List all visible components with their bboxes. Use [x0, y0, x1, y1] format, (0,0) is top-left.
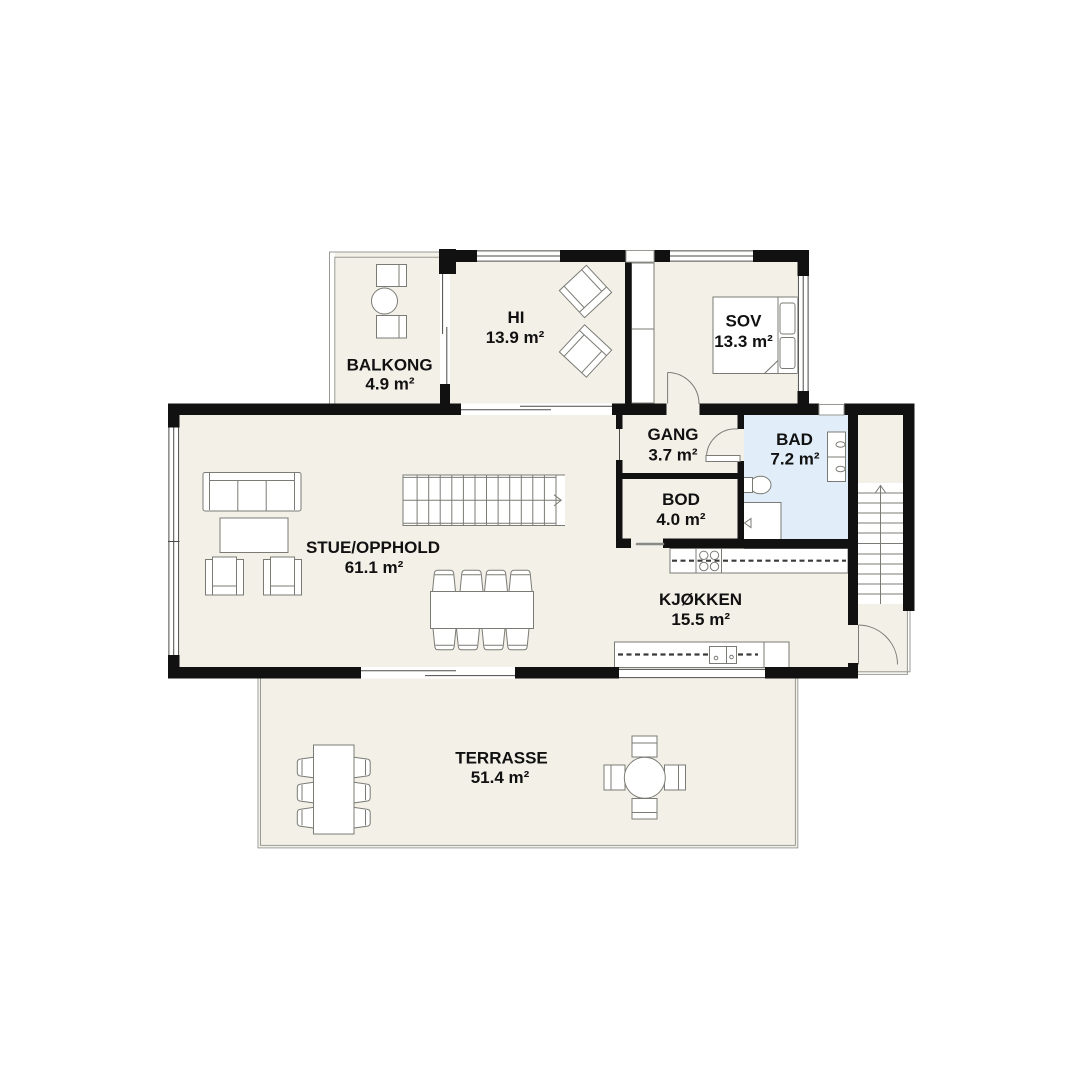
svg-text:KJØKKEN: KJØKKEN — [659, 590, 742, 609]
svg-text:4.0 m²: 4.0 m² — [656, 510, 705, 529]
svg-text:BOD: BOD — [662, 490, 700, 509]
svg-text:61.1 m²: 61.1 m² — [345, 558, 404, 577]
svg-text:BALKONG: BALKONG — [347, 355, 433, 374]
svg-text:4.9 m²: 4.9 m² — [365, 375, 414, 394]
svg-text:3.7 m²: 3.7 m² — [648, 446, 697, 465]
svg-text:13.9 m²: 13.9 m² — [486, 328, 545, 347]
svg-text:51.4 m²: 51.4 m² — [471, 768, 530, 787]
svg-text:SOV: SOV — [726, 311, 763, 330]
svg-text:GANG: GANG — [648, 425, 699, 444]
svg-text:STUE/OPPHOLD: STUE/OPPHOLD — [306, 538, 440, 557]
svg-text:BAD: BAD — [776, 430, 813, 449]
svg-text:13.3 m²: 13.3 m² — [714, 332, 773, 351]
svg-text:TERRASSE: TERRASSE — [455, 749, 548, 768]
svg-text:HI: HI — [508, 308, 525, 327]
svg-text:7.2 m²: 7.2 m² — [770, 450, 819, 469]
svg-text:15.5 m²: 15.5 m² — [671, 610, 730, 629]
